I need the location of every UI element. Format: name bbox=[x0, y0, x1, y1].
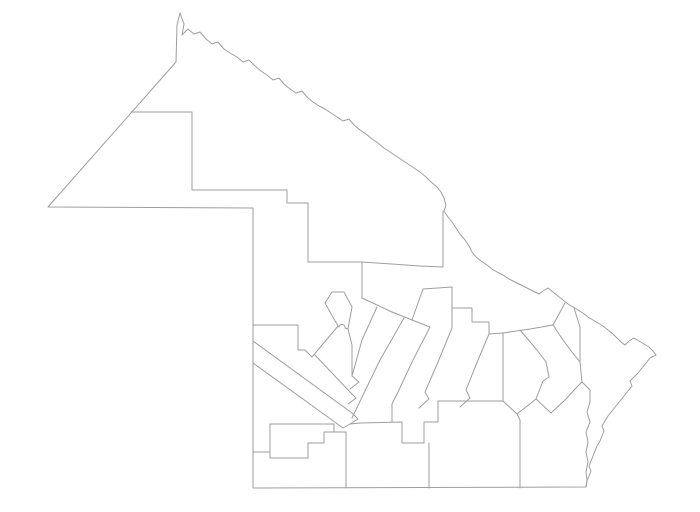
region-outline-map bbox=[0, 0, 700, 512]
department-boundary bbox=[352, 318, 404, 418]
department-boundary bbox=[362, 298, 430, 327]
department-boundary bbox=[553, 325, 580, 362]
department-boundary bbox=[350, 401, 503, 443]
department-boundary bbox=[362, 262, 443, 267]
province-outer-boundary bbox=[48, 13, 656, 488]
department-boundary bbox=[460, 334, 489, 407]
department-boundary bbox=[131, 112, 362, 262]
department-boundary bbox=[566, 382, 582, 399]
department-boundary bbox=[348, 329, 352, 376]
map-canvas bbox=[0, 0, 700, 512]
department-boundary bbox=[503, 399, 566, 414]
department-boundary bbox=[392, 327, 430, 422]
department-boundary bbox=[517, 414, 520, 488]
department-boundary bbox=[412, 287, 503, 334]
department-boundary bbox=[315, 355, 356, 404]
department-boundary bbox=[253, 325, 338, 357]
department-boundary bbox=[308, 432, 324, 458]
department-boundary bbox=[574, 308, 590, 487]
department-boundaries bbox=[131, 112, 590, 488]
department-boundary bbox=[253, 363, 343, 428]
department-boundary bbox=[419, 308, 452, 408]
department-boundary bbox=[325, 292, 352, 329]
department-boundary bbox=[520, 330, 549, 399]
department-boundary bbox=[350, 307, 377, 389]
